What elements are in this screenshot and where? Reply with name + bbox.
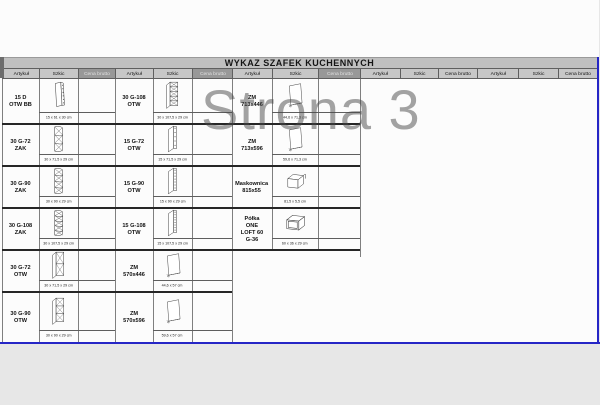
column-header-label: Cena brutto xyxy=(565,71,591,77)
dimension-caption: 44,6 x 71,3 cm xyxy=(273,111,317,123)
door-panel-icon xyxy=(273,79,317,111)
column-header-szkic: Szkic xyxy=(272,68,319,79)
sketch-cell: 81,5 x 5,5 cm xyxy=(273,167,317,207)
sketch-cell: 15 x 90 x 29 cm xyxy=(154,167,191,207)
article-name-cell: ZM 713x596 xyxy=(233,125,271,165)
price-cell-empty xyxy=(79,125,114,165)
column-header-cena-brutto: Cena brutto xyxy=(558,68,598,79)
column-header-artykul: Artykuł xyxy=(477,68,519,79)
dimension-caption-text: 30 x 90 x 29 cm xyxy=(46,199,72,203)
sketch-cell: 30 x 90 x 29 cm xyxy=(40,293,77,341)
column-header-artykul: Artykuł xyxy=(2,68,40,79)
article-name: 15 G-90 OTW xyxy=(121,180,146,194)
dimension-caption-text: 81,5 x 5,5 cm xyxy=(284,199,306,203)
dimension-caption-text: 30 x 71,5 x 29 cm xyxy=(44,157,73,161)
column-header-artykul: Artykuł xyxy=(232,68,273,79)
sketch-cell: 15 x 61 x 30 cm xyxy=(40,79,77,123)
column-header-label: Artykuł xyxy=(490,71,505,77)
price-cell-empty xyxy=(79,293,114,341)
article-name: 30 G-90 ZAK xyxy=(8,180,33,194)
dimension-caption-text: 30 x 107,5 x 29 cm xyxy=(43,241,74,245)
column-header-artykul: Artykuł xyxy=(360,68,401,79)
open-box-shelf-icon xyxy=(273,209,317,237)
sketch-cell: 30 x 107,5 x 29 cm xyxy=(154,79,191,123)
grid-line-vertical xyxy=(360,68,361,257)
price-cell-empty xyxy=(319,209,359,249)
door-panel-icon xyxy=(273,125,317,153)
article-name-cell: 30 G-72 OTW xyxy=(3,251,38,291)
article-name-cell: Półka ONE LOFT 60 G-36 xyxy=(233,209,271,249)
sketch-cell: 30 x 71,5 x 29 cm xyxy=(40,251,77,291)
page-border-bottom xyxy=(0,342,600,344)
table-title-bar: WYKAZ SZAFEK KUCHENNYCH xyxy=(0,57,599,68)
sketch-cell: 60 x 36 x 29 cm xyxy=(273,209,317,249)
dimension-caption-text: 15 x 61 x 30 cm xyxy=(46,115,72,119)
price-cell-empty xyxy=(193,251,231,291)
column-header-label: Artykuł xyxy=(13,71,28,77)
open-shelf-cabinet-3-icon xyxy=(40,293,77,329)
article-name: 30 G-72 ZAK xyxy=(8,138,33,152)
article-name: 15 G-72 OTW xyxy=(121,138,146,152)
price-cell-empty xyxy=(319,79,359,123)
dimension-caption-text: 15 x 107,5 x 29 cm xyxy=(157,241,188,245)
dimension-caption: 30 x 90 x 29 cm xyxy=(40,329,77,341)
column-header-cena-brutto: Cena brutto xyxy=(78,68,116,79)
dimension-caption-text: 30 x 107,5 x 29 cm xyxy=(157,115,188,119)
corner-open-shelf-4-icon xyxy=(40,167,77,195)
dimension-caption: 59,6 x 71,3 cm xyxy=(273,153,317,165)
column-header-szkic: Szkic xyxy=(153,68,193,79)
article-name-cell: 15 D OTW BB xyxy=(3,79,38,123)
price-cell-empty xyxy=(193,293,231,341)
sketch-cell: 30 x 71,5 x 29 cm xyxy=(40,125,77,165)
article-name: 30 G-108 ZAK xyxy=(8,222,33,236)
price-cell-empty xyxy=(319,167,359,207)
dimension-caption: 15 x 71,5 x 29 cm xyxy=(154,153,191,165)
article-name-cell: 30 G-90 OTW xyxy=(3,293,38,341)
column-header-label: Artykuł xyxy=(127,71,142,77)
column-header-label: Szkic xyxy=(53,71,65,77)
dimension-caption: 30 x 107,5 x 29 cm xyxy=(154,111,191,123)
article-name: ZM 713x446 xyxy=(239,94,266,108)
column-header-label: Cena brutto xyxy=(84,71,110,77)
column-header-label: Cena brutto xyxy=(200,71,226,77)
article-name-cell: ZM 713x446 xyxy=(233,79,271,123)
article-name: Maskownica 815x55 xyxy=(236,180,269,194)
row-header-stub xyxy=(0,57,4,78)
article-name-cell: ZM 570x446 xyxy=(116,251,152,291)
dimension-caption: 15 x 90 x 29 cm xyxy=(154,195,191,207)
article-name: Półka ONE LOFT 60 G-36 xyxy=(239,215,266,243)
article-name: 30 G-108 OTW xyxy=(121,94,146,108)
dimension-caption: 44,6 x 57 cm xyxy=(154,279,191,291)
article-name: 30 G-90 OTW xyxy=(8,310,33,324)
dimension-caption: 30 x 71,5 x 29 cm xyxy=(40,279,77,291)
article-name-cell: 30 G-108 ZAK xyxy=(3,209,38,249)
column-header-label: Szkic xyxy=(167,71,179,77)
column-header-cena-brutto: Cena brutto xyxy=(318,68,361,79)
sketch-cell: 15 x 71,5 x 29 cm xyxy=(154,125,191,165)
side-panel-with-holes-icon xyxy=(40,79,77,111)
article-name: ZM 570x596 xyxy=(121,310,146,324)
dimension-caption: 30 x 71,5 x 29 cm xyxy=(40,153,77,165)
open-shelf-cabinet-5-icon xyxy=(154,79,191,111)
open-shelf-cabinet-2-icon xyxy=(40,251,77,279)
column-header-label: Artykuł xyxy=(373,71,388,77)
article-name-cell: ZM 570x596 xyxy=(116,293,152,341)
column-header-cena-brutto: Cena brutto xyxy=(438,68,478,79)
article-name-cell: Maskownica 815x55 xyxy=(233,167,271,207)
column-header-label: Szkic xyxy=(533,71,545,77)
price-cell-empty xyxy=(79,167,114,207)
dimension-caption-text: 59,6 x 71,3 cm xyxy=(283,157,307,161)
article-name: ZM 713x596 xyxy=(239,138,266,152)
price-cell-empty xyxy=(193,209,231,249)
dimension-caption-text: 30 x 71,5 x 29 cm xyxy=(44,283,73,287)
column-header-szkic: Szkic xyxy=(400,68,439,79)
column-header-szkic: Szkic xyxy=(39,68,79,79)
dimension-caption-text: 60 x 36 x 29 cm xyxy=(282,241,308,245)
column-header-label: Szkic xyxy=(290,71,302,77)
narrow-open-shelf-8-icon xyxy=(154,209,191,237)
dimension-caption: 60 x 36 x 29 cm xyxy=(273,237,317,249)
dimension-caption-text: 44,6 x 57 cm xyxy=(162,283,183,287)
price-cell-empty xyxy=(319,125,359,165)
table-title: WYKAZ SZAFEK KUCHENNYCH xyxy=(225,58,375,68)
article-name-cell: 30 G-72 ZAK xyxy=(3,125,38,165)
article-name: 15 D OTW BB xyxy=(8,94,33,108)
corner-open-shelf-3-icon xyxy=(40,125,77,153)
article-name-cell: 15 G-90 OTW xyxy=(116,167,152,207)
article-name-cell: 15 G-108 OTW xyxy=(116,209,152,249)
article-name-cell: 15 G-72 OTW xyxy=(116,125,152,165)
article-name-cell: 30 G-108 OTW xyxy=(116,79,152,123)
price-cell-empty xyxy=(79,251,114,291)
column-header-label: Cena brutto xyxy=(445,71,471,77)
door-panel-icon xyxy=(154,293,191,329)
price-cell-empty xyxy=(193,79,231,123)
dimension-caption: 81,5 x 5,5 cm xyxy=(273,195,317,207)
column-header-label: Cena brutto xyxy=(327,71,353,77)
narrow-open-shelf-5-icon xyxy=(154,125,191,153)
dimension-caption-text: 44,6 x 71,3 cm xyxy=(283,115,307,119)
dimension-caption-text: 30 x 90 x 29 cm xyxy=(46,333,72,337)
article-name: ZM 570x446 xyxy=(121,264,146,278)
sketch-cell: 59,6 x 71,3 cm xyxy=(273,125,317,165)
sketch-cell: 59,6 x 57 cm xyxy=(154,293,191,341)
sketch-cell: 44,6 x 71,3 cm xyxy=(273,79,317,123)
column-header-cena-brutto: Cena brutto xyxy=(192,68,233,79)
narrow-open-shelf-7-icon xyxy=(154,167,191,195)
dimension-caption: 15 x 107,5 x 29 cm xyxy=(154,237,191,249)
dimension-caption: 59,6 x 57 cm xyxy=(154,329,191,341)
article-name-cell: 30 G-90 ZAK xyxy=(3,167,38,207)
dimension-caption: 30 x 107,5 x 29 cm xyxy=(40,237,77,249)
corner-open-shelf-5-icon xyxy=(40,209,77,237)
dimension-caption: 15 x 61 x 30 cm xyxy=(40,111,77,123)
column-header-label: Szkic xyxy=(414,71,426,77)
door-panel-icon xyxy=(154,251,191,279)
price-cell-empty xyxy=(193,167,231,207)
cover-strip-3d-icon xyxy=(273,167,317,195)
page-border-right xyxy=(597,57,599,344)
sketch-cell: 30 x 107,5 x 29 cm xyxy=(40,209,77,249)
sketch-cell: 30 x 90 x 29 cm xyxy=(40,167,77,207)
price-cell-empty xyxy=(193,125,231,165)
sketch-cell: 44,6 x 57 cm xyxy=(154,251,191,291)
column-header-artykul: Artykuł xyxy=(115,68,154,79)
article-name: 30 G-72 OTW xyxy=(8,264,33,278)
column-header-label: Artykuł xyxy=(245,71,260,77)
dimension-caption: 30 x 90 x 29 cm xyxy=(40,195,77,207)
sketch-cell: 15 x 107,5 x 29 cm xyxy=(154,209,191,249)
column-header-szkic: Szkic xyxy=(518,68,559,79)
price-cell-empty xyxy=(79,209,114,249)
dimension-caption-text: 59,6 x 57 cm xyxy=(162,333,183,337)
price-cell-empty xyxy=(79,79,114,123)
dimension-caption-text: 15 x 71,5 x 29 cm xyxy=(158,157,187,161)
dimension-caption-text: 15 x 90 x 29 cm xyxy=(160,199,186,203)
print-preview-page: WYKAZ SZAFEK KUCHENNYCH Strona 3 Artykuł… xyxy=(0,0,600,405)
article-name: 15 G-108 OTW xyxy=(121,222,146,236)
